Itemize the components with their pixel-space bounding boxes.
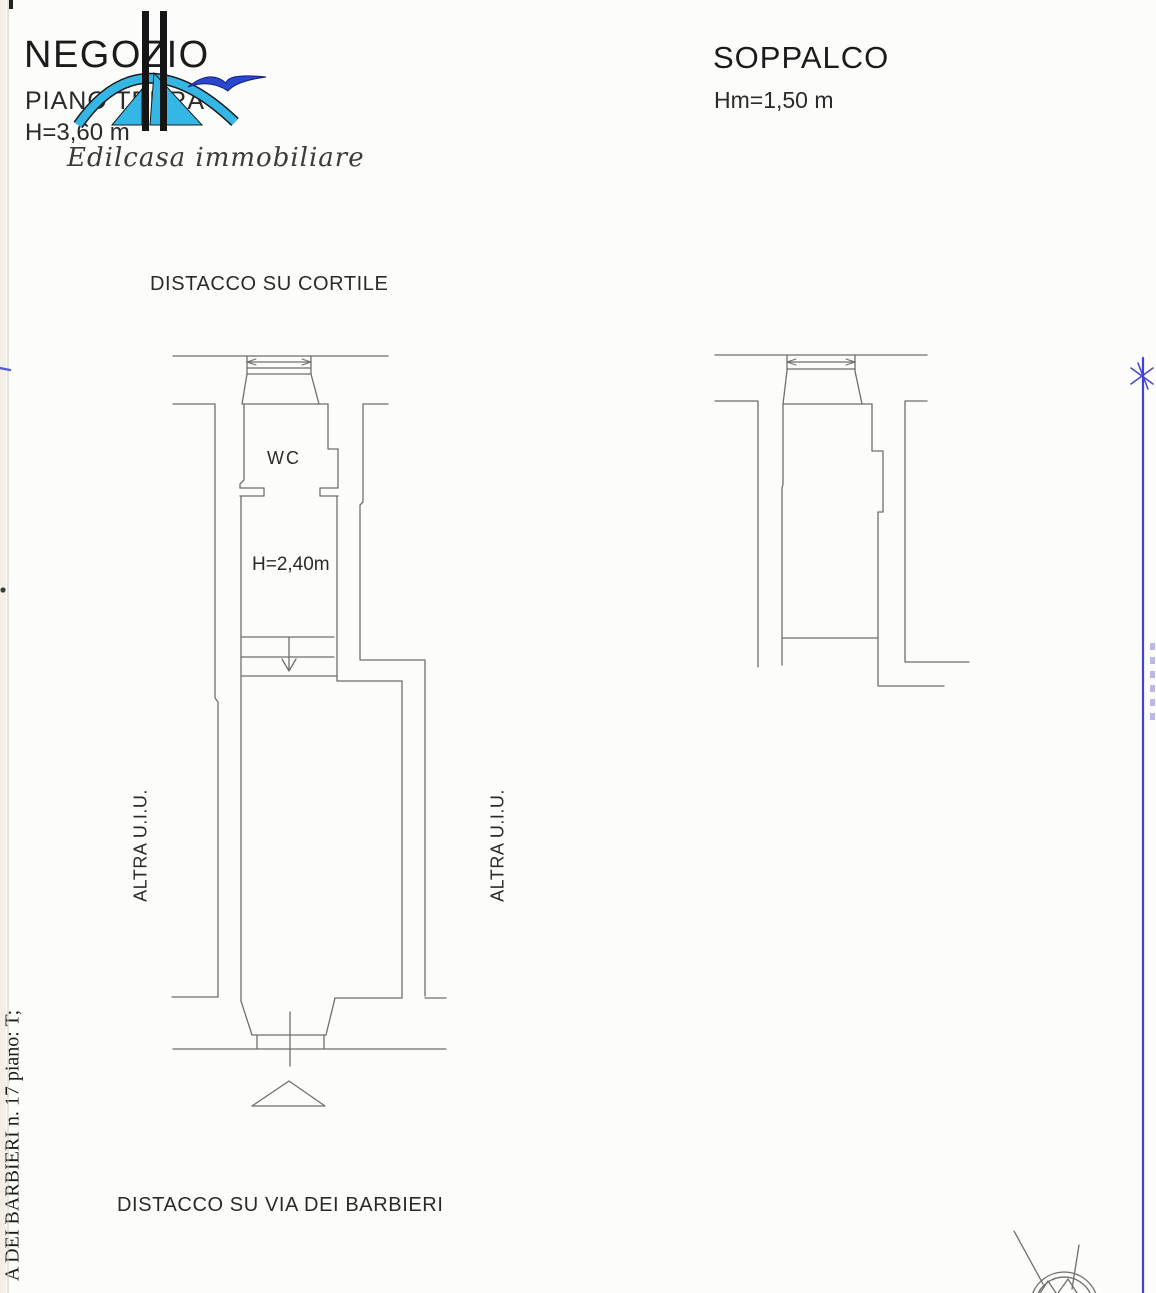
mezzanine-wall-right — [872, 404, 944, 686]
mezzanine-plan — [715, 355, 969, 686]
entrance-door — [241, 998, 335, 1066]
neighbour-wall-left — [172, 404, 218, 997]
margin-blue-smudges — [1150, 643, 1155, 720]
stairs-symbol — [241, 637, 336, 676]
ground-floor-plan — [172, 356, 446, 1106]
scan-tick-top — [9, 0, 13, 9]
entrance-triangle-icon — [252, 1081, 325, 1106]
main-room-wall-right — [335, 681, 402, 998]
neighbour-wall-left-mezzanine — [715, 401, 758, 667]
compass-icon — [1014, 1231, 1096, 1293]
floorplan-drawing — [0, 0, 1156, 1293]
wc-room-walls — [240, 404, 338, 496]
window-symbol-mezzanine — [783, 355, 862, 404]
scan-dot — [0, 587, 5, 592]
window-symbol-ground — [242, 356, 319, 404]
neighbour-wall-right — [360, 404, 446, 998]
mezzanine-wall-left — [782, 404, 783, 665]
neighbour-wall-right-mezzanine — [905, 401, 969, 662]
floorplan-page: NEGOZIO PIANO TERRA H=3,60 m Edilcasa im… — [0, 0, 1156, 1293]
boundary-blue-line — [1131, 358, 1153, 1293]
